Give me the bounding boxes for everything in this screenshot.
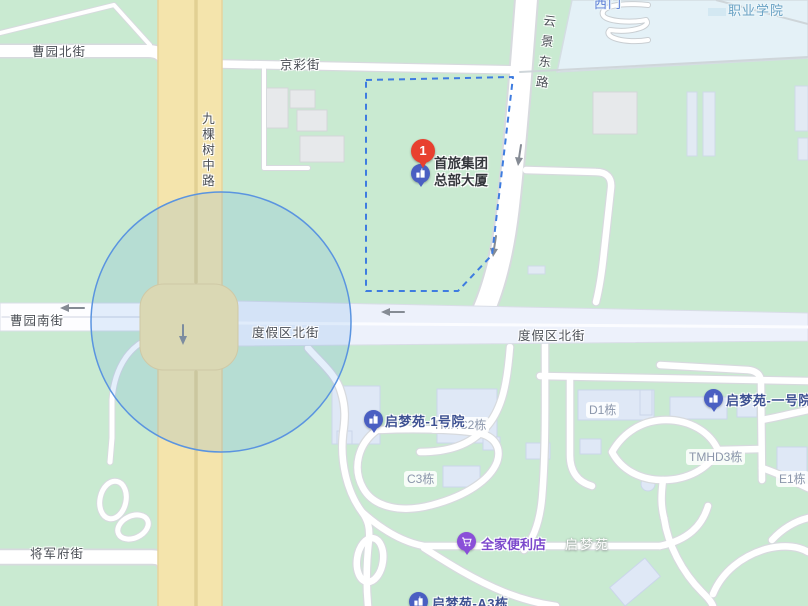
building-icon — [708, 393, 719, 404]
street-label-dujiaqu-north-east: 度假区北街 — [518, 325, 586, 344]
street-label-jiukeshu-middle: 九棵树中路 — [198, 112, 217, 190]
familymart-label[interactable]: 全家便利店 — [481, 534, 546, 553]
area-label-qimengyuan: 启梦苑 — [565, 534, 610, 553]
street-label-dujiaqu-north-west: 度假区北街 — [252, 322, 320, 341]
map-base-graphics — [0, 0, 808, 606]
qimengyuan-1-court-marker[interactable] — [364, 410, 383, 429]
selected-result-pin[interactable]: 1 — [411, 139, 435, 163]
qimengyuan-a3-label[interactable]: 启梦苑-A3栋 — [432, 593, 508, 606]
shoulv-hq-label-line2: 总部大厦 — [434, 172, 488, 189]
building-label-e1[interactable]: E1栋 — [776, 471, 808, 487]
qimengyuan-no1-label[interactable]: 启梦苑-一号院 — [726, 390, 808, 409]
street-label-caoyuan-south: 曹园南街 — [10, 310, 64, 329]
building-label-d1[interactable]: D1栋 — [586, 402, 619, 418]
street-label-jingcai: 京彩街 — [280, 54, 321, 73]
familymart-marker[interactable] — [457, 532, 476, 551]
building-icon — [415, 168, 426, 179]
building-icon — [413, 596, 424, 606]
shoulv-hq-label-line1: 首旅集团 — [434, 155, 488, 172]
qimengyuan-1-court-label[interactable]: 启梦苑-1号院 — [385, 411, 465, 430]
street-label-caoyuan-north: 曹园北街 — [32, 41, 86, 60]
street-label-jiangjunfu: 将军府街 — [30, 543, 84, 562]
building-label-tmhd3[interactable]: TMHD3栋 — [686, 449, 745, 465]
building-icon — [368, 414, 379, 425]
qimengyuan-a3-marker[interactable] — [409, 592, 428, 606]
map-viewport[interactable]: 曹园北街 京彩街 九棵树中路 云景东路 曹园南街 度假区北街 度假区北街 将军府… — [0, 0, 808, 606]
shoulv-hq-label[interactable]: 首旅集团 总部大厦 — [434, 155, 488, 189]
area-label-west-gate: 西门 — [594, 0, 622, 12]
building-label-c3[interactable]: C3栋 — [404, 471, 437, 487]
shopping-cart-icon — [461, 536, 473, 548]
qimengyuan-no1-marker[interactable] — [704, 389, 723, 408]
area-label-vocational-college: 职业学院 — [728, 0, 784, 19]
